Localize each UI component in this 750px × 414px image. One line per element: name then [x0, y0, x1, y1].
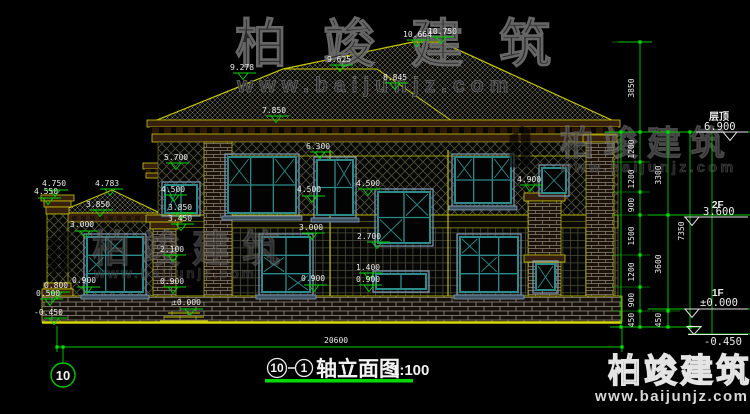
chain-dim-text: 450 [627, 313, 636, 328]
svg-text:3.000: 3.000 [70, 220, 94, 229]
watermark-site-text: www.baijunjz.com [594, 388, 748, 405]
brand-logo-icon [153, 11, 205, 72]
dimension-text-group: 3850120012009001500120090045033003600450… [627, 78, 686, 327]
drawing-title: 轴立面图 [316, 357, 400, 381]
svg-text:±0.000: ±0.000 [172, 298, 201, 307]
chain-dim-text: 3600 [654, 254, 663, 273]
svg-text:4.550: 4.550 [34, 187, 58, 196]
svg-text:4.500: 4.500 [356, 179, 380, 188]
window [222, 154, 302, 220]
level-minus-045: -0.450 [687, 327, 748, 349]
svg-text:0.900: 0.900 [301, 274, 325, 283]
window [449, 154, 517, 210]
level-value: 3.600 [703, 206, 735, 218]
title-underline [265, 379, 413, 383]
chain-dim-text: 7350 [677, 221, 686, 240]
svg-text:4.500: 4.500 [161, 185, 185, 194]
window [454, 234, 524, 299]
watermark-site-text: www.baijunjz.com [559, 160, 736, 176]
svg-text:1.400: 1.400 [356, 263, 380, 272]
chain-dim-text: 900 [627, 198, 636, 213]
cad-elevation-screen: 柏竣建筑 www.baijunjz.com 柏竣建筑 www.baijunjz.… [0, 0, 750, 414]
svg-text:3.000: 3.000 [299, 223, 323, 232]
title-block: 10 1 轴立面图 1:100 [265, 357, 429, 383]
svg-text:4.783: 4.783 [95, 179, 119, 188]
svg-text:4.900: 4.900 [517, 175, 541, 184]
chain-dim-text: 1200 [627, 262, 636, 281]
level-value: 6.900 [704, 121, 736, 133]
svg-text:2.700: 2.700 [357, 232, 381, 241]
svg-text:6.300: 6.300 [306, 142, 330, 151]
svg-text:0.900: 0.900 [356, 275, 380, 284]
svg-text:0.900: 0.900 [72, 276, 96, 285]
elevation-drawing-canvas: 柏竣建筑 www.baijunjz.com 柏竣建筑 www.baijunjz.… [0, 0, 750, 414]
watermark-bottom-right: 柏竣建筑 www.baijunjz.com [560, 342, 750, 405]
svg-text:5.700: 5.700 [164, 153, 188, 162]
chain-dim-text: 3850 [627, 78, 636, 97]
svg-text:0.900: 0.900 [160, 277, 184, 286]
chain-dim-text: 1200 [627, 139, 636, 158]
chain-dim-text: 450 [654, 313, 663, 328]
svg-text:3.850: 3.850 [168, 203, 192, 212]
watermark-brand-text: 柏竣建筑 [235, 16, 587, 74]
title-axis-start: 10 [270, 361, 284, 375]
chain-dim-text: 1500 [627, 226, 636, 245]
svg-text:7.850: 7.850 [262, 106, 286, 115]
plinth [42, 296, 622, 322]
svg-text:9.625: 9.625 [327, 55, 351, 64]
svg-text:8.845: 8.845 [383, 73, 407, 82]
title-axis-end: 1 [301, 361, 308, 375]
level-value: ±0.000 [700, 297, 738, 309]
main-cornice [147, 120, 620, 142]
level-1f: 1F ±0.000 [684, 288, 748, 318]
svg-text:3.450: 3.450 [168, 214, 192, 223]
svg-text:9.278: 9.278 [230, 63, 254, 72]
overall-width-dim: 20600 [324, 336, 348, 345]
svg-text:4.500: 4.500 [297, 185, 321, 194]
drawing-scale: 1:100 [391, 362, 429, 379]
chain-dim-text: 900 [627, 293, 636, 308]
axis-bubble-label: 10 [56, 368, 70, 383]
window [533, 261, 558, 293]
window [375, 189, 433, 246]
level-value: -0.450 [704, 336, 742, 348]
svg-text:-0.450: -0.450 [34, 308, 63, 317]
svg-text:10.750: 10.750 [428, 27, 457, 36]
chain-dim-text: 1200 [627, 169, 636, 188]
chain-dim-text: 3300 [654, 165, 663, 184]
svg-text:0.500: 0.500 [36, 289, 60, 298]
svg-text:3.850: 3.850 [86, 200, 110, 209]
watermark-brand-text: 柏竣建筑 [608, 352, 750, 389]
window [373, 271, 429, 292]
level-2f: 2F 3.600 [684, 200, 748, 226]
watermark-site-text: www.baijunjz.com [236, 74, 514, 97]
svg-text:2.100: 2.100 [160, 245, 184, 254]
axis-bubble: 10 [51, 363, 75, 387]
